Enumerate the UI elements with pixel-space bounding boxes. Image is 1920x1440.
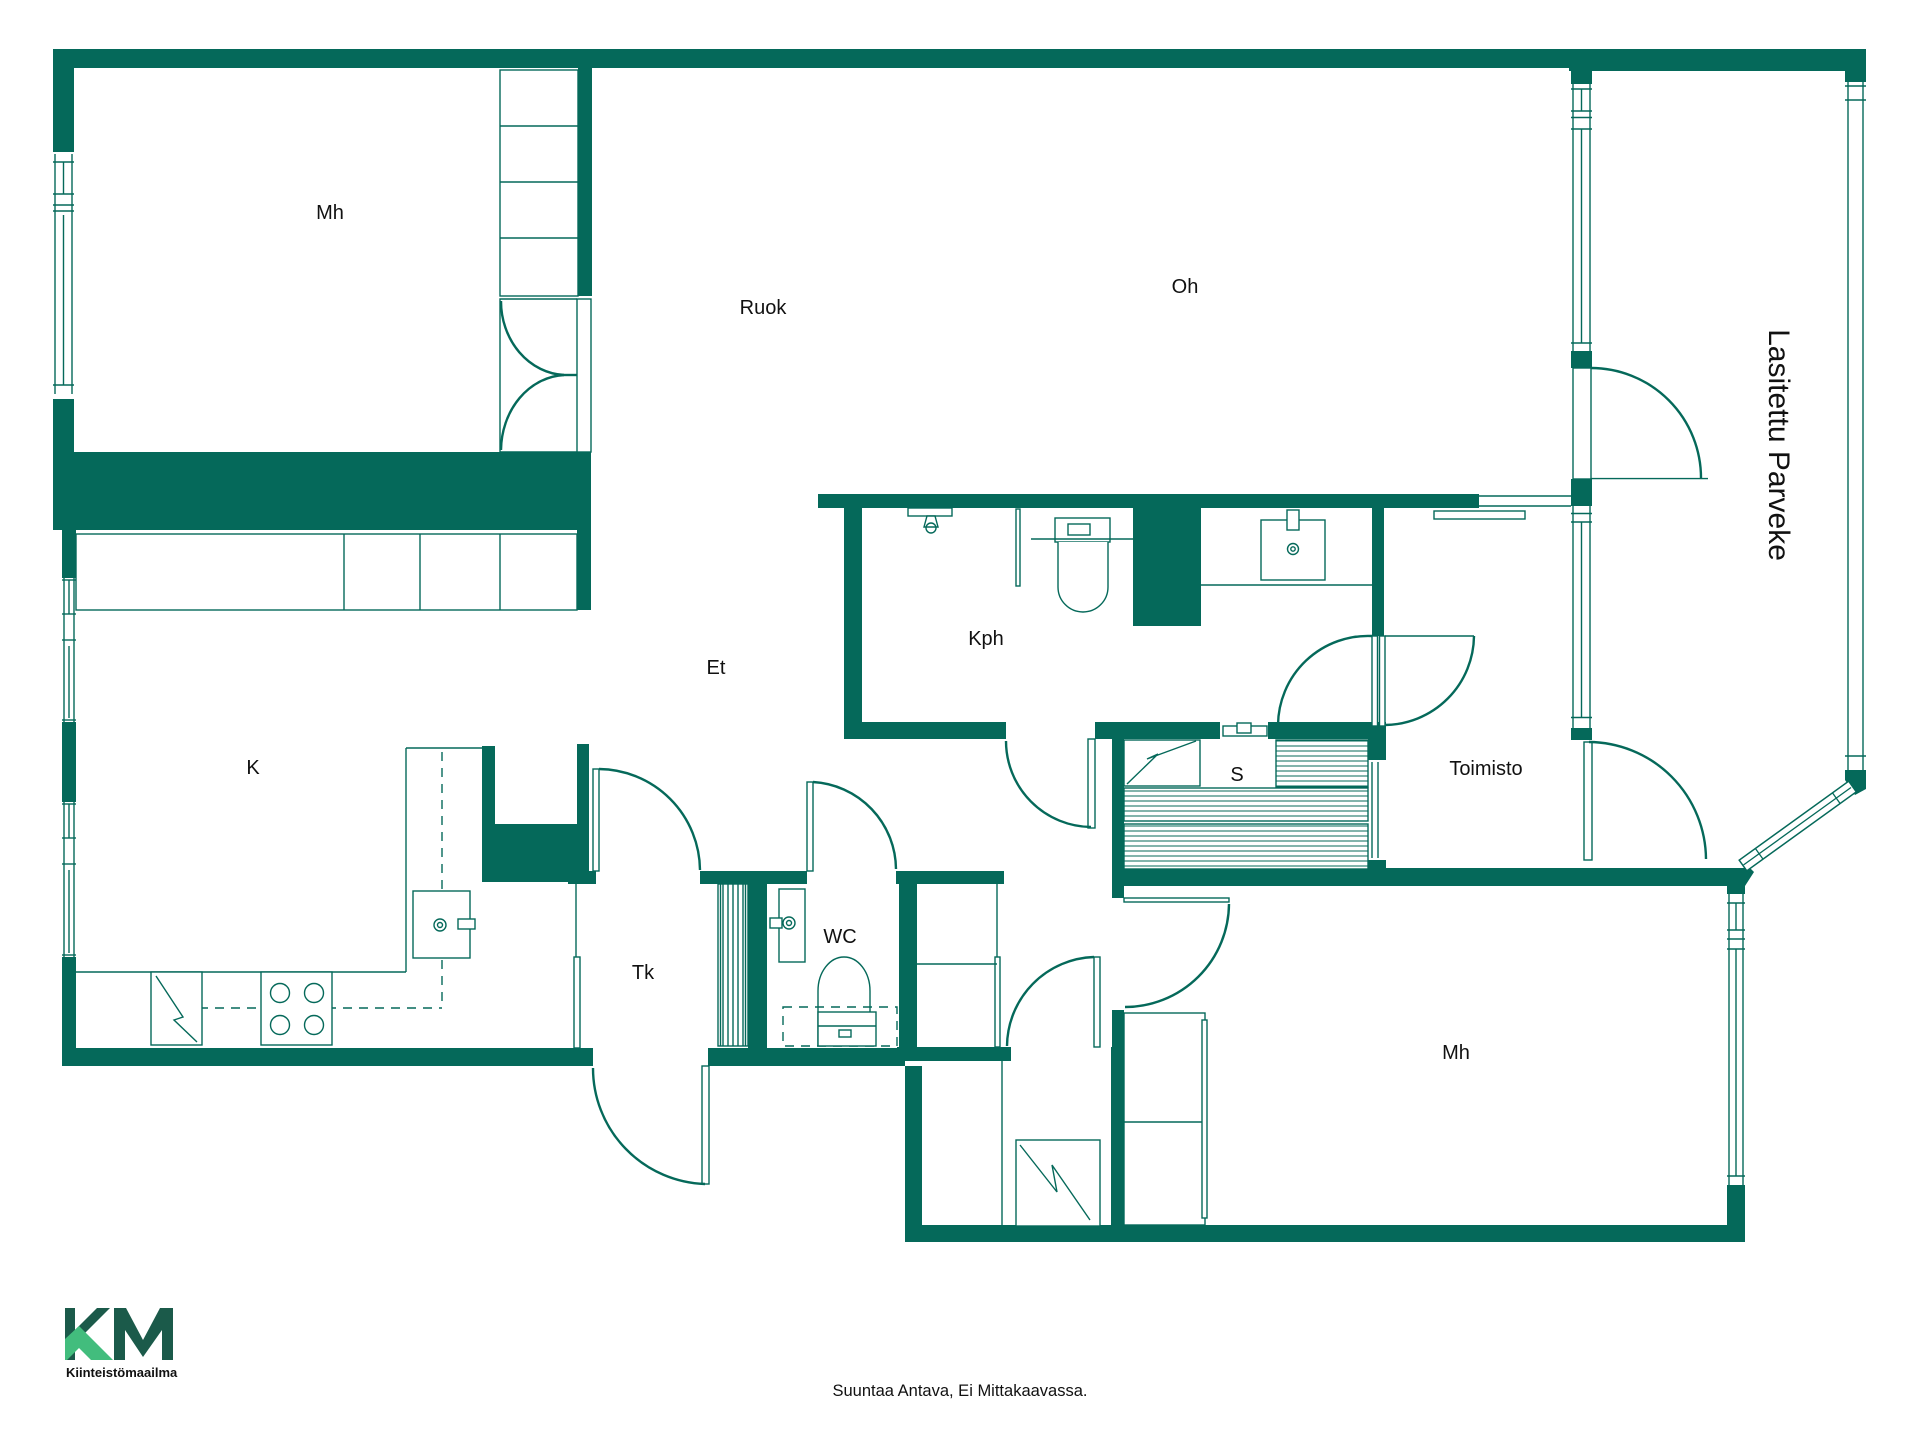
svg-text:K: K [246,757,260,779]
svg-text:WC: WC [823,926,856,948]
svg-text:Oh: Oh [1172,276,1199,298]
svg-text:Tk: Tk [632,962,655,984]
svg-text:Kiinteistömaailma: Kiinteistömaailma [66,1365,178,1380]
svg-text:Toimisto: Toimisto [1449,758,1522,780]
svg-text:Lasitettu Parveke: Lasitettu Parveke [1762,329,1795,561]
svg-text:Kph: Kph [968,628,1004,650]
svg-text:Suuntaa Antava, Ei Mittakaavas: Suuntaa Antava, Ei Mittakaavassa. [833,1382,1088,1400]
svg-text:Mh: Mh [1442,1042,1470,1064]
svg-text:S: S [1230,764,1243,786]
svg-text:Mh: Mh [316,202,344,224]
svg-text:Et: Et [707,657,726,679]
svg-text:Ruok: Ruok [740,297,788,319]
